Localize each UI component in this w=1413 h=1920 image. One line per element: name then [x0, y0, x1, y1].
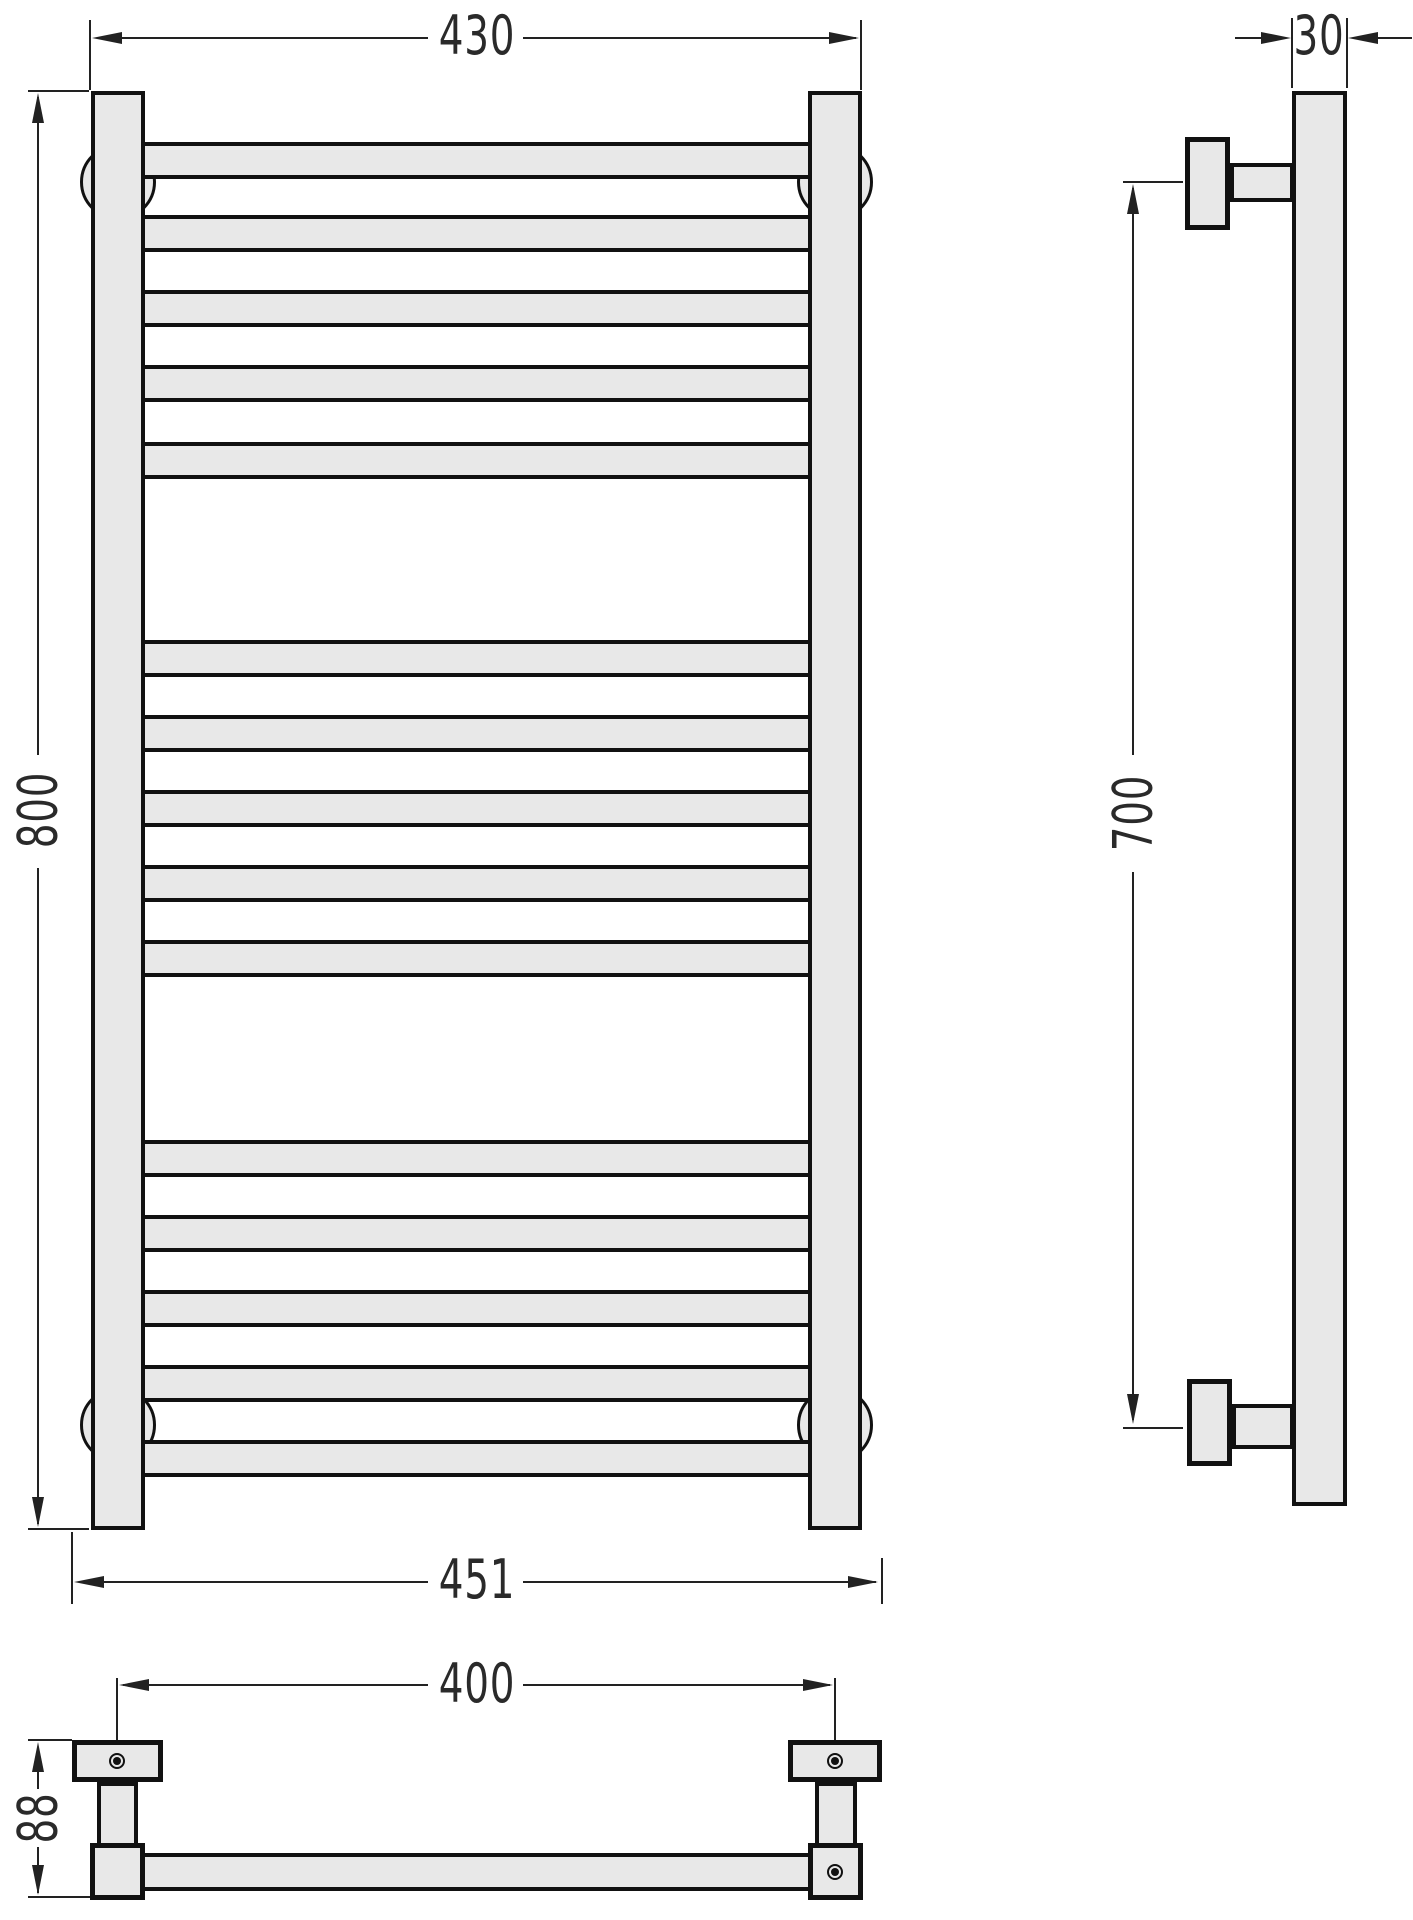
extension-line [28, 1896, 90, 1898]
dimension-line [523, 37, 856, 39]
dimension-line [523, 1684, 830, 1686]
bracket-plate-bottom [1187, 1379, 1232, 1466]
dimension-line [523, 1581, 876, 1583]
extension-line [834, 1678, 836, 1740]
extension-line [89, 20, 91, 90]
extension-line [71, 1532, 73, 1604]
towel-rung [145, 142, 808, 179]
bracket-plate-top [1185, 137, 1230, 230]
dim-arrow-right-icon [829, 32, 859, 44]
dimension-line [37, 97, 39, 755]
screw-hole-right-plate [827, 1753, 843, 1769]
towel-rung [145, 640, 808, 677]
dimension-line [37, 868, 39, 1524]
extension-line [28, 1739, 72, 1741]
dimension-line [1132, 188, 1134, 755]
dimension-430-label: 430 [439, 4, 515, 67]
extension-line [28, 1528, 89, 1530]
screw-hole-left-plate [109, 1753, 125, 1769]
side-post-bar [1292, 91, 1347, 1506]
bottom-view-post-left [90, 1843, 145, 1900]
dimension-line [79, 1581, 428, 1583]
towel-rung [145, 290, 808, 327]
towel-rung [145, 715, 808, 752]
dimension-800-label: 800 [7, 772, 70, 848]
bottom-view-stem-left [97, 1782, 138, 1847]
dimension-700-label: 700 [1102, 775, 1165, 851]
right-post [808, 91, 862, 1530]
towel-rung [145, 1365, 808, 1402]
dim-arrow-left-icon [74, 1576, 104, 1588]
extension-line [881, 1558, 883, 1604]
dimension-30-label: 30 [1294, 4, 1345, 67]
dim-arrow-left-icon [92, 32, 122, 44]
towel-rung [145, 1440, 808, 1477]
towel-rung [145, 215, 808, 252]
dim-arrow-right-icon [803, 1679, 833, 1691]
dim-arrow-up-icon [32, 1742, 44, 1772]
dim-arrow-up-icon [32, 93, 44, 123]
dim-arrow-down-icon [1127, 1394, 1139, 1424]
extension-line [1346, 18, 1348, 88]
dimension-line [1132, 872, 1134, 1420]
extension-line [116, 1678, 118, 1740]
dim-arrow-down-icon [32, 1865, 44, 1895]
left-post [91, 91, 145, 1530]
screw-hole-right-post [827, 1864, 843, 1880]
towel-rung [145, 865, 808, 902]
dimension-88-label: 88 [7, 1793, 70, 1844]
towel-rung [145, 940, 808, 977]
extension-line [1123, 181, 1183, 183]
towel-rung [145, 1215, 808, 1252]
extension-line [1123, 1427, 1183, 1429]
dim-arrow-right-icon [1261, 32, 1291, 44]
dim-arrow-down-icon [32, 1497, 44, 1527]
extension-line [860, 20, 862, 90]
dimension-451-label: 451 [439, 1548, 515, 1611]
towel-rung [145, 442, 808, 479]
dimension-line [1235, 37, 1263, 39]
bracket-stem-top [1230, 163, 1294, 202]
extension-line [28, 90, 89, 92]
towel-rung [145, 365, 808, 402]
bottom-rung-top-view [145, 1853, 808, 1891]
dimension-line [123, 1684, 428, 1686]
dim-arrow-right-icon [848, 1576, 878, 1588]
dim-arrow-up-icon [1127, 184, 1139, 214]
drawing-canvas: 430 800 451 30 700 [0, 0, 1413, 1920]
dim-arrow-left-icon [119, 1679, 149, 1691]
towel-rung [145, 1140, 808, 1177]
bottom-view-stem-right [815, 1782, 857, 1847]
dimension-line [1376, 37, 1412, 39]
bracket-stem-bottom [1232, 1404, 1294, 1449]
towel-rung [145, 790, 808, 827]
towel-rung [145, 1290, 808, 1327]
dimension-400-label: 400 [439, 1652, 515, 1715]
dim-arrow-left-icon [1348, 32, 1378, 44]
dimension-line [97, 37, 428, 39]
